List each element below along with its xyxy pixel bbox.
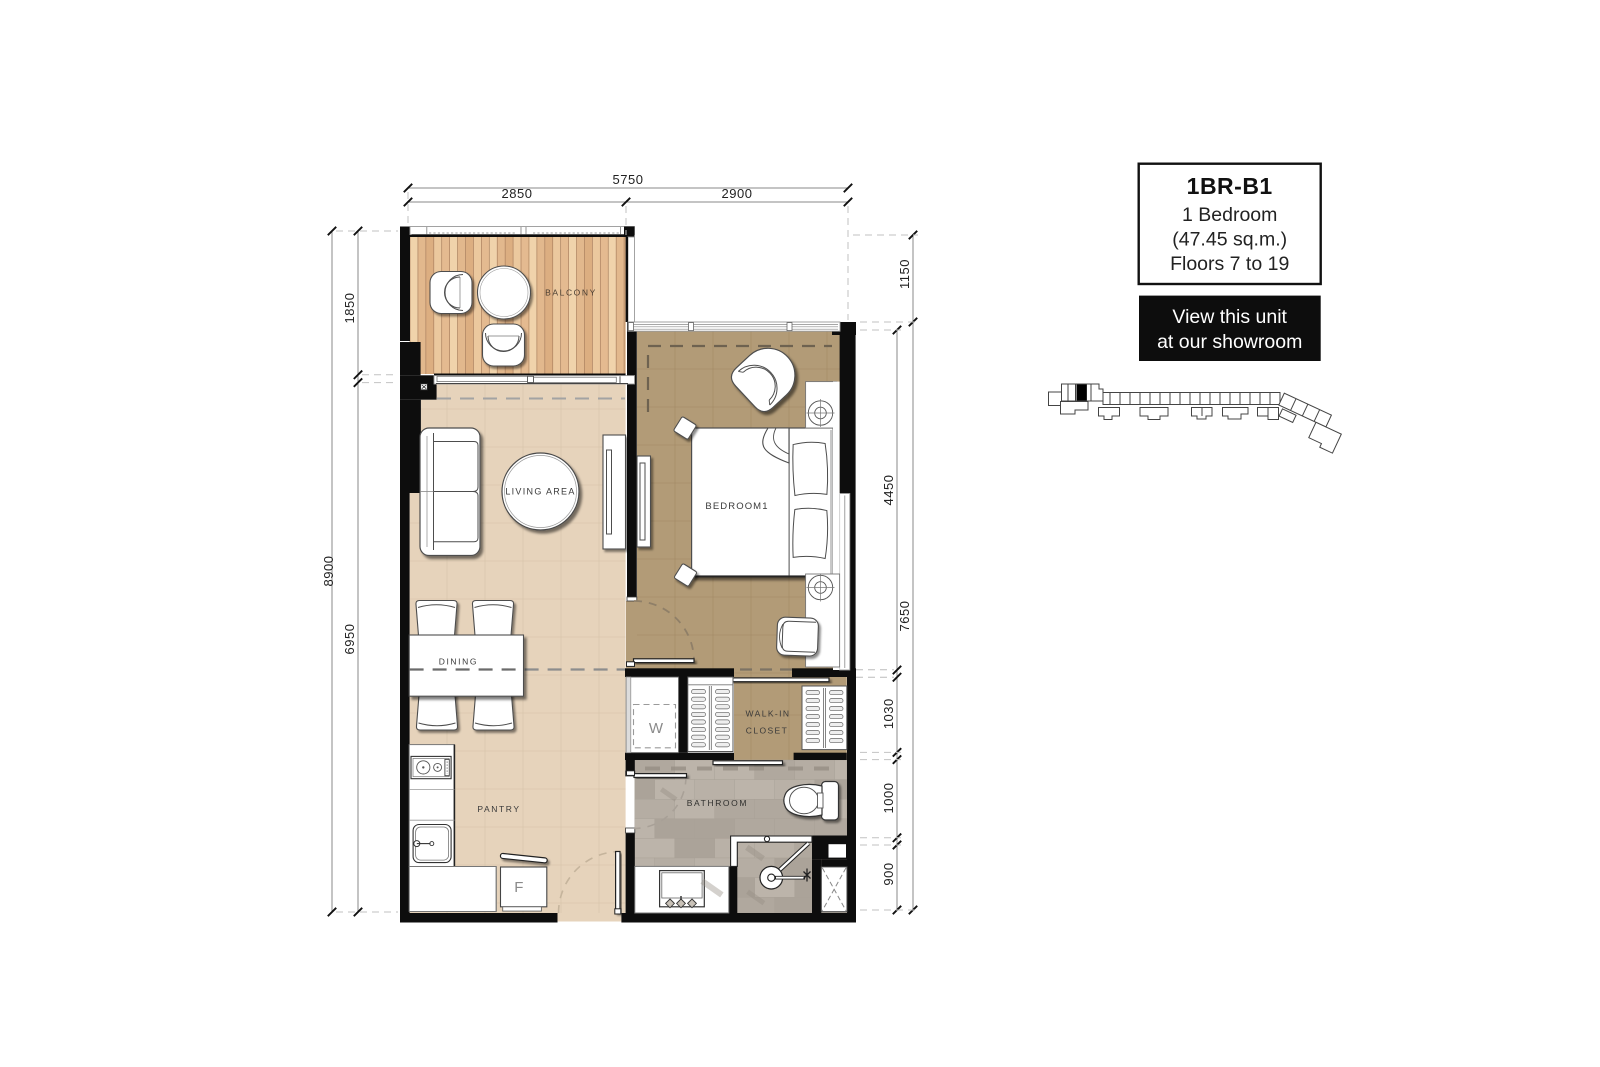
svg-text:7650: 7650 (897, 601, 912, 632)
svg-text:DINING: DINING (439, 657, 478, 667)
svg-text:CLOSET: CLOSET (746, 726, 788, 736)
svg-text:2850: 2850 (502, 186, 533, 201)
svg-text:1030: 1030 (881, 698, 896, 729)
svg-text:1 Bedroom: 1 Bedroom (1182, 204, 1277, 226)
svg-text:1150: 1150 (897, 259, 912, 289)
svg-text:1000: 1000 (881, 783, 896, 814)
svg-text:5750: 5750 (613, 172, 644, 187)
svg-text:F: F (514, 879, 523, 896)
svg-text:2900: 2900 (722, 186, 753, 201)
svg-text:at our showroom: at our showroom (1157, 331, 1302, 353)
svg-text:Floors 7 to 19: Floors 7 to 19 (1170, 253, 1289, 275)
svg-text:BEDROOM1: BEDROOM1 (705, 501, 768, 512)
svg-text:(47.45 sq.m.): (47.45 sq.m.) (1172, 229, 1287, 251)
svg-text:4450: 4450 (881, 475, 896, 506)
svg-text:LIVING AREA: LIVING AREA (505, 487, 575, 497)
svg-text:View this unit: View this unit (1172, 306, 1287, 328)
svg-text:PANTRY: PANTRY (477, 804, 520, 814)
svg-text:1850: 1850 (342, 293, 357, 324)
svg-text:900: 900 (881, 862, 896, 885)
svg-text:W: W (649, 720, 664, 737)
svg-text:BATHROOM: BATHROOM (687, 798, 748, 808)
svg-text:8900: 8900 (321, 556, 336, 587)
svg-text:6950: 6950 (342, 624, 357, 655)
svg-text:WALK-IN: WALK-IN (746, 709, 791, 719)
svg-text:1BR-B1: 1BR-B1 (1187, 173, 1273, 199)
svg-text:BALCONY: BALCONY (545, 288, 597, 298)
